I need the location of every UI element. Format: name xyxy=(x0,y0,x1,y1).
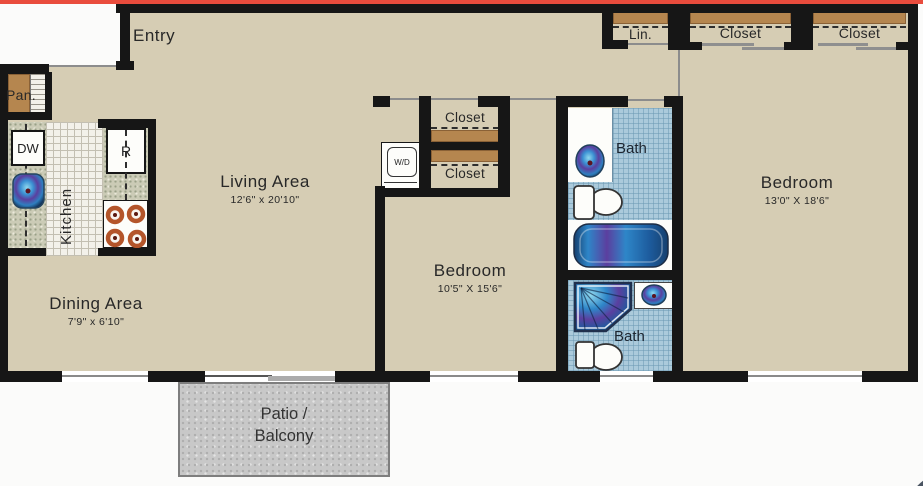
closet-hall-upper-label: Closet xyxy=(431,110,499,125)
bedroom-right-door xyxy=(678,50,680,96)
wall xyxy=(431,142,498,150)
bath-lower-label: Bath xyxy=(614,328,645,345)
window xyxy=(748,371,862,382)
wall xyxy=(908,4,918,382)
dining-area-dims: 7'9" x 6'10" xyxy=(21,316,171,328)
patio-door-panel xyxy=(268,376,335,381)
wall xyxy=(373,96,390,107)
bedroom-middle-label: Bedroom xyxy=(395,261,545,281)
patio-label-line1: Patio / xyxy=(178,403,390,425)
wall xyxy=(791,8,813,42)
wall xyxy=(148,371,205,382)
linen-door xyxy=(628,43,668,45)
bath-lower-sink xyxy=(642,285,666,305)
dining-area-label-group: Dining Area 7'9" x 6'10" xyxy=(21,294,171,328)
stove-burners xyxy=(108,207,144,246)
wall xyxy=(0,248,46,256)
entry-label: Entry xyxy=(133,26,175,46)
bedroom-right-label: Bedroom xyxy=(722,173,872,193)
kitchen-label: Kitchen xyxy=(58,150,75,245)
closet-door-opening xyxy=(431,98,478,100)
shower xyxy=(575,283,631,331)
fixtures-layer xyxy=(0,0,923,486)
bath-lower-toilet xyxy=(576,342,622,370)
entry-door-opening xyxy=(49,65,116,67)
closet-hall-lower-label: Closet xyxy=(431,166,499,181)
bedroom-middle-label-group: Bedroom 10'5" X 15'6" xyxy=(395,261,545,295)
wall xyxy=(556,96,628,107)
window xyxy=(600,371,653,382)
wall xyxy=(784,42,813,50)
patio-label-line2: Balcony xyxy=(178,425,390,447)
bath-upper-sink xyxy=(576,145,604,177)
bedroom-right-label-group: Bedroom 13'0" X 18'6" xyxy=(722,173,872,207)
living-area-label-group: Living Area 12'6" x 20'10" xyxy=(190,172,340,206)
wall xyxy=(498,96,510,196)
closet-bedroom-right-1-label: Closet xyxy=(690,25,791,41)
wall xyxy=(375,186,385,376)
bedroom-right-dims: 13'0" X 18'6" xyxy=(722,195,872,207)
wall xyxy=(668,42,702,50)
linen-closet-label: Lin. xyxy=(613,27,668,42)
living-area-label: Living Area xyxy=(190,172,340,192)
wall xyxy=(0,371,62,382)
window xyxy=(62,371,148,382)
wall xyxy=(148,119,156,256)
wall xyxy=(672,96,683,382)
patio-sliding-door xyxy=(205,371,335,382)
wall xyxy=(556,96,568,382)
kitchen-sink xyxy=(13,174,44,208)
wall xyxy=(116,61,134,70)
bedroom-middle-dims: 10'5" X 15'6" xyxy=(395,283,545,295)
patio-label-group: Patio / Balcony xyxy=(178,403,390,447)
bath-door-opening xyxy=(628,99,664,101)
wall xyxy=(419,96,431,196)
dining-area-label: Dining Area xyxy=(21,294,171,314)
wall xyxy=(375,188,510,197)
floor-plan: DW R W/D xyxy=(0,0,923,486)
wall xyxy=(562,270,672,280)
wall xyxy=(0,112,52,120)
bath-upper-toilet xyxy=(574,186,622,219)
washer-dryer-door-opening xyxy=(390,98,419,100)
window xyxy=(430,371,518,382)
patio-door-panel xyxy=(205,375,272,377)
wall xyxy=(653,371,748,382)
bathtub xyxy=(574,224,668,267)
bath-upper-label: Bath xyxy=(616,140,647,157)
living-area-dims: 12'6" x 20'10" xyxy=(190,194,340,206)
bedroom-middle-door-opening xyxy=(510,98,556,100)
wall xyxy=(896,42,918,50)
wall xyxy=(98,248,156,256)
closet-bedroom-right-2-label: Closet xyxy=(813,25,906,41)
pantry-label: Pan. xyxy=(6,87,36,103)
wall xyxy=(116,4,134,13)
